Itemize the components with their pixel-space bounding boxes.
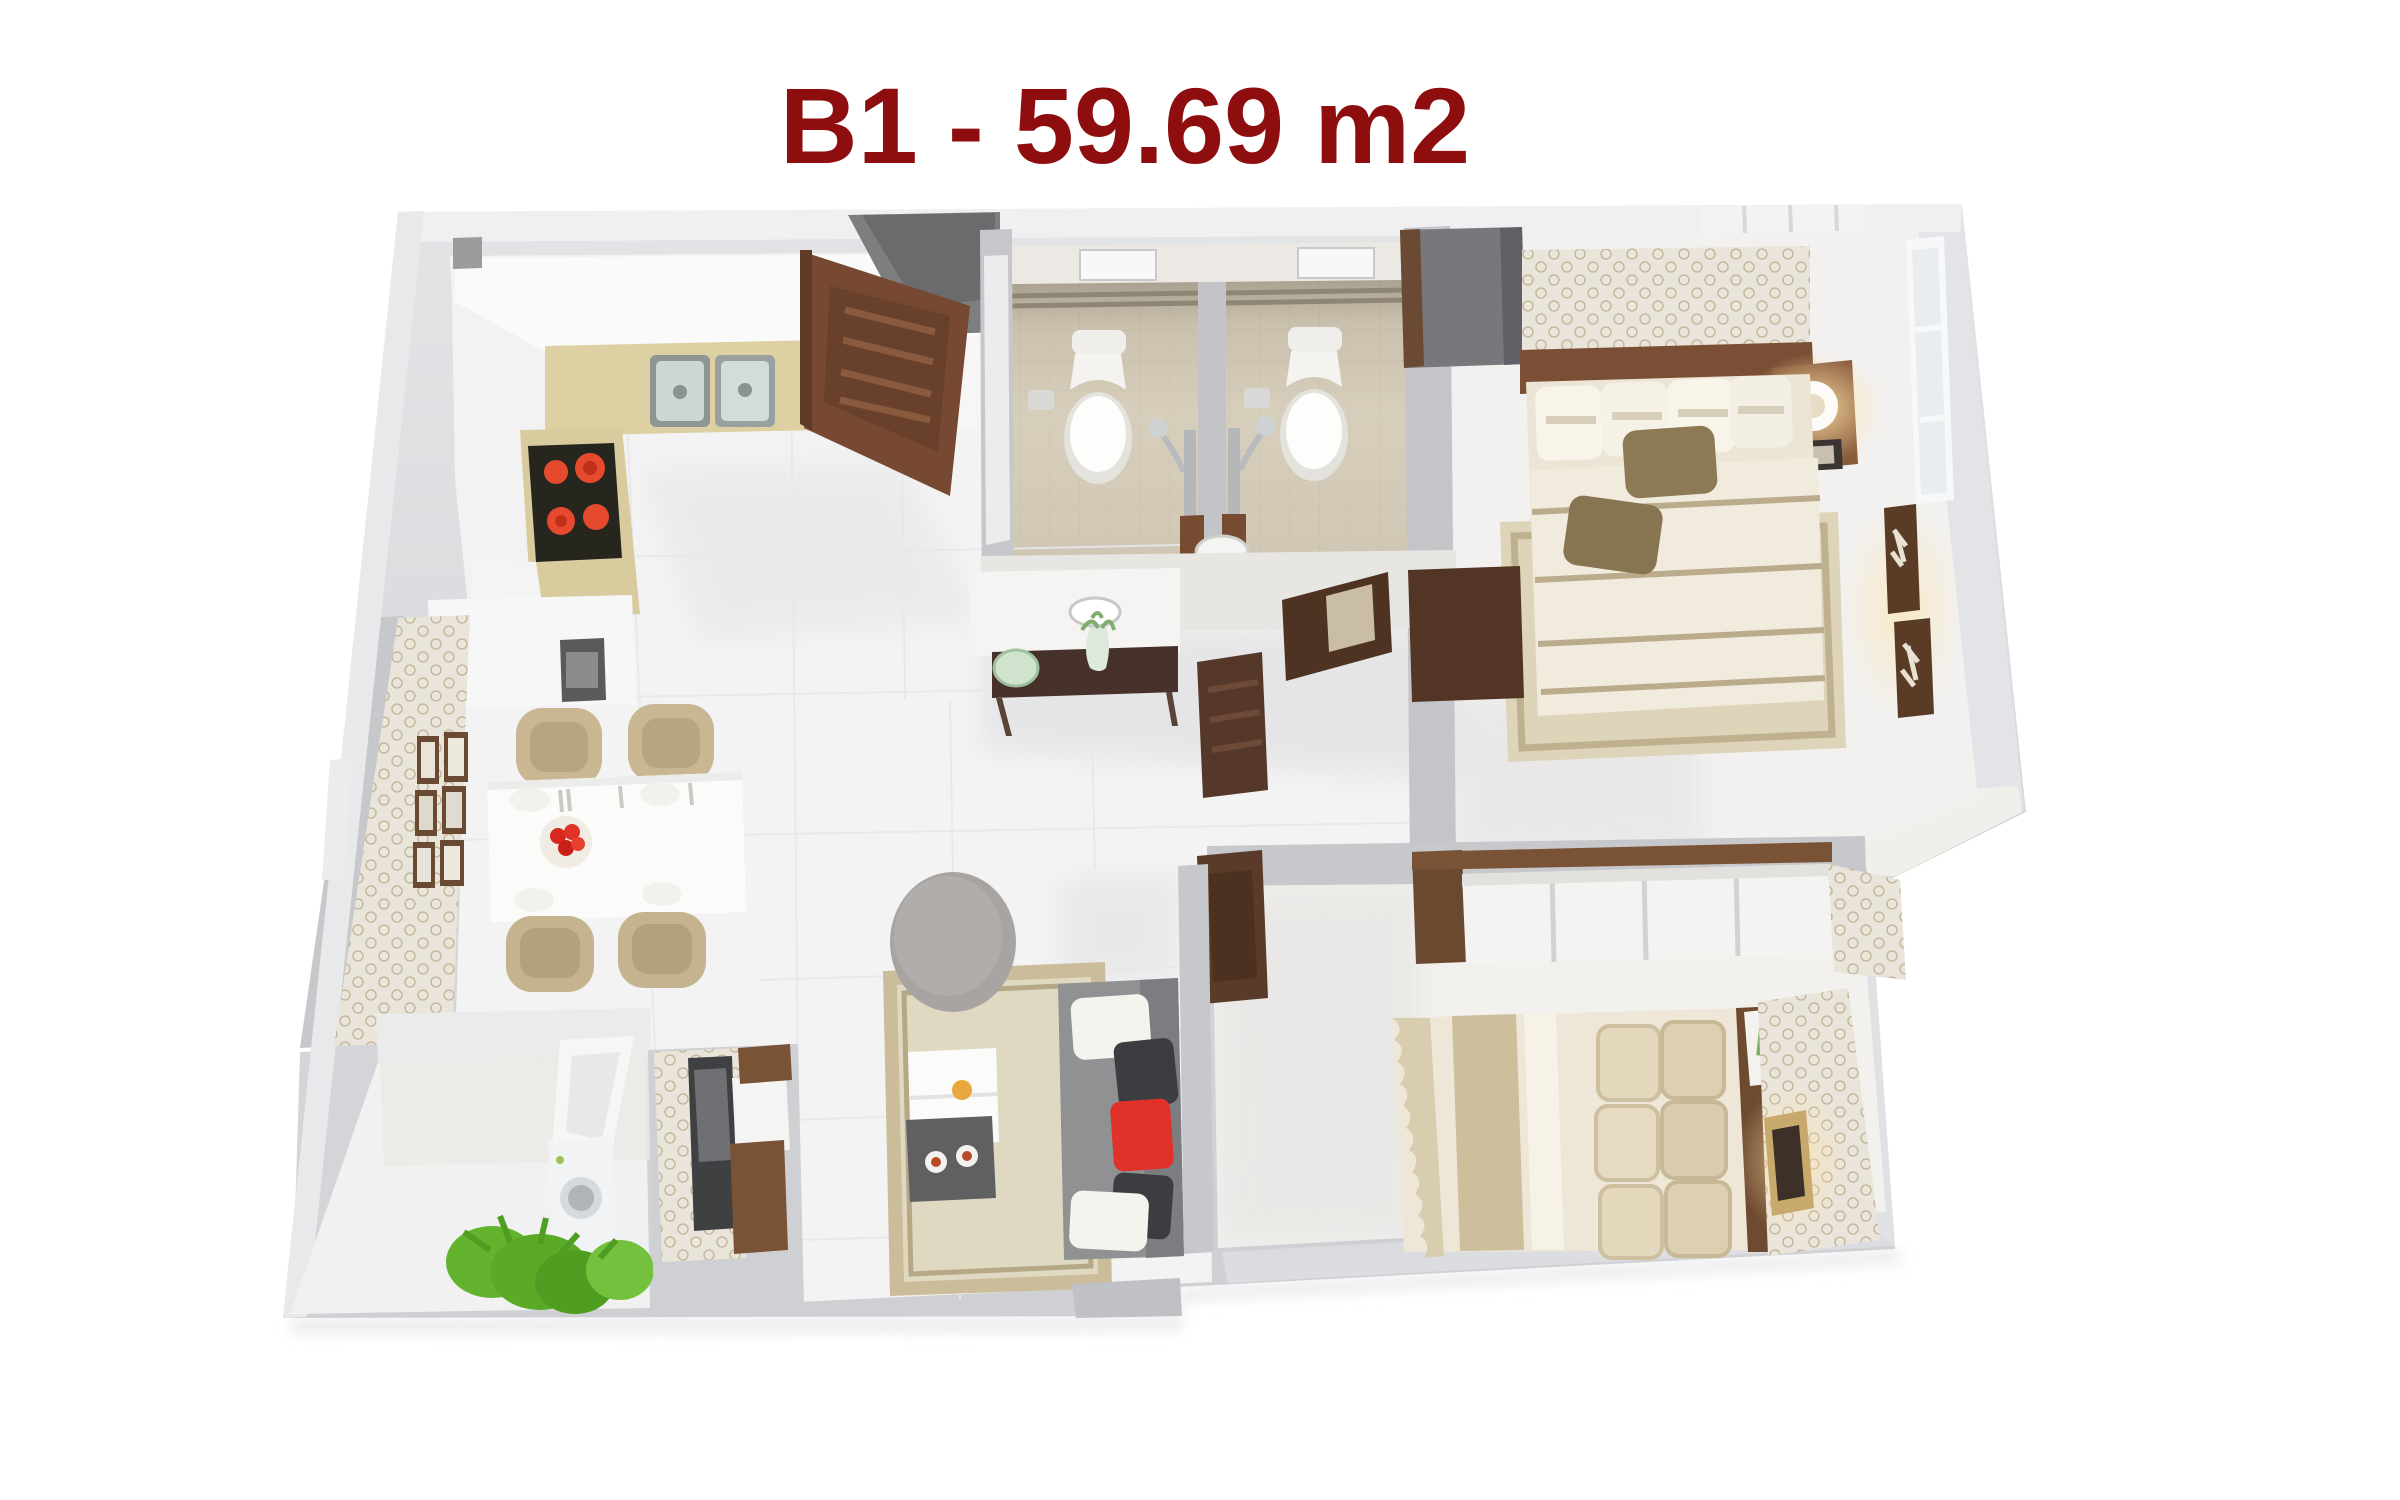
svg-text:B1 - 59.69 m2: B1 - 59.69 m2 [780, 65, 1470, 186]
